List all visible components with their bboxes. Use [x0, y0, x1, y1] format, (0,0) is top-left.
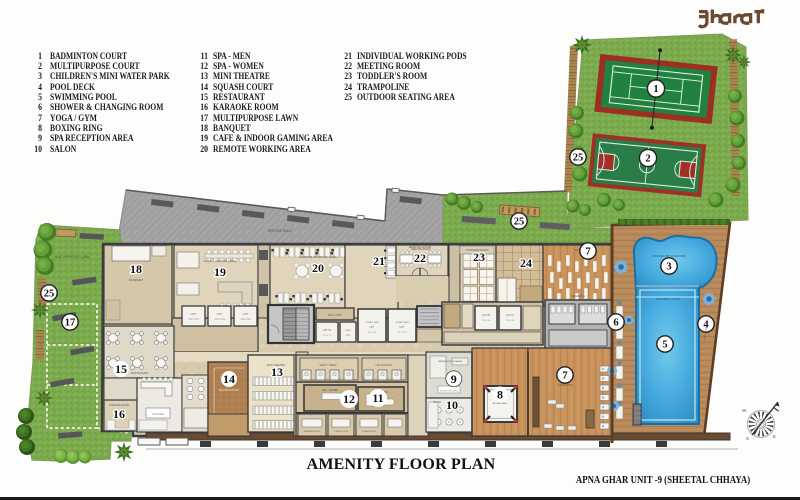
svg-text:KITCHEN: KITCHEN: [152, 412, 164, 416]
svg-text:11'0 X 7'0: 11'0 X 7'0: [323, 335, 333, 337]
svg-text:RESTAURANT: RESTAURANT: [131, 371, 149, 375]
svg-text:9: 9: [451, 372, 457, 386]
svg-text:STRETCHER: STRETCHER: [365, 322, 379, 324]
svg-text:18: 18: [130, 262, 142, 276]
svg-text:LIFT 07: LIFT 07: [506, 315, 515, 317]
svg-text:CAFE + GAMING AREA: CAFE + GAMING AREA: [204, 259, 236, 263]
svg-text:12: 12: [343, 392, 355, 406]
svg-text:15: 15: [115, 362, 127, 376]
svg-text:10: 10: [446, 398, 458, 412]
svg-text:LIFT: LIFT: [243, 312, 249, 316]
svg-text:BANQUET: BANQUET: [129, 278, 144, 282]
svg-text:REFUGE WALK: REFUGE WALK: [268, 229, 293, 233]
svg-text:LIFT: LIFT: [400, 327, 405, 329]
svg-text:VANITY TOILET: VANITY TOILET: [319, 364, 337, 367]
svg-text:S: S: [746, 436, 749, 441]
svg-text:1: 1: [653, 84, 658, 95]
svg-text:MASSAGE ROOM: MASSAGE ROOM: [304, 430, 321, 433]
svg-text:14: 14: [223, 372, 235, 386]
svg-text:14'7 X 8'0: 14'7 X 8'0: [398, 332, 408, 334]
svg-text:SPA - WOMEN: SPA - WOMEN: [322, 389, 338, 392]
svg-text:25: 25: [514, 217, 525, 228]
svg-text:FIRE: FIRE: [346, 330, 352, 332]
svg-text:22: 22: [414, 251, 426, 265]
svg-text:SALON: SALON: [433, 401, 441, 404]
svg-text:LIFT 05: LIFT 05: [482, 315, 491, 317]
svg-text:KARAOKE ROOM: KARAOKE ROOM: [109, 404, 129, 407]
svg-text:SPA RECEPTION AREA: SPA RECEPTION AREA: [438, 360, 462, 363]
svg-text:W: W: [742, 408, 747, 413]
svg-text:11'0 X 8'0: 11'0 X 8'0: [506, 320, 516, 322]
svg-text:MEETING ROOM: MEETING ROOM: [409, 245, 432, 249]
svg-text:7: 7: [585, 247, 590, 258]
svg-text:STRETCHER: STRETCHER: [395, 322, 409, 324]
svg-text:11: 11: [372, 391, 383, 405]
svg-text:LIFT: LIFT: [346, 335, 351, 337]
svg-text:23: 23: [473, 250, 485, 264]
svg-text:STEAM ROOM: STEAM ROOM: [334, 430, 348, 433]
svg-text:CHILDREN MINI WATER PARK: CHILDREN MINI WATER PARK: [652, 255, 686, 258]
svg-text:CHANGING: CHANGING: [571, 294, 585, 298]
svg-text:25: 25: [44, 289, 55, 300]
svg-text:LIFT: LIFT: [191, 312, 197, 316]
svg-text:13: 13: [271, 365, 283, 379]
svg-text:LIFT: LIFT: [217, 312, 223, 316]
svg-text:STEAM ROOM: STEAM ROOM: [362, 430, 376, 433]
svg-text:3: 3: [666, 262, 671, 273]
svg-text:LIFT 6A: LIFT 6A: [323, 329, 332, 332]
svg-text:20: 20: [312, 261, 324, 275]
svg-text:LADYS TOILET: LADYS TOILET: [376, 364, 393, 367]
svg-text:17: 17: [65, 318, 76, 329]
svg-text:SQUASH COURT: SQUASH COURT: [219, 389, 240, 392]
svg-text:6: 6: [613, 318, 618, 329]
svg-text:LIFT: LIFT: [370, 327, 375, 329]
svg-text:24: 24: [520, 256, 532, 270]
svg-text:21: 21: [373, 254, 385, 268]
svg-text:11'0 X 8'0: 11'0 X 8'0: [188, 318, 199, 321]
svg-text:BOXING RING: BOXING RING: [493, 403, 508, 405]
svg-text:19: 19: [214, 265, 226, 279]
svg-text:11'0 X 8'0: 11'0 X 8'0: [214, 318, 225, 321]
svg-text:14'7 X 8'0: 14'7 X 8'0: [368, 332, 378, 334]
svg-text:8: 8: [497, 388, 503, 402]
svg-text:FIRE LOBBY: FIRE LOBBY: [328, 314, 342, 317]
svg-text:7: 7: [562, 371, 567, 382]
svg-text:GYMNASIUM: GYMNASIUM: [558, 384, 573, 387]
svg-text:2: 2: [645, 154, 650, 165]
svg-text:E: E: [773, 434, 776, 439]
svg-text:SWIMMING POOL: SWIMMING POOL: [655, 297, 680, 301]
svg-text:MULTIPURPOSE LAWN: MULTIPURPOSE LAWN: [55, 255, 91, 259]
svg-text:RECEPTION DESK: RECEPTION DESK: [440, 391, 458, 393]
svg-text:5: 5: [662, 340, 667, 351]
svg-text:11'0 X 8'0: 11'0 X 8'0: [240, 318, 251, 321]
svg-text:11'0 X 8'0: 11'0 X 8'0: [482, 320, 492, 322]
svg-text:16: 16: [113, 407, 125, 421]
svg-text:REMOTE WORKING AREA: REMOTE WORKING AREA: [299, 255, 336, 259]
svg-text:25: 25: [573, 153, 584, 164]
